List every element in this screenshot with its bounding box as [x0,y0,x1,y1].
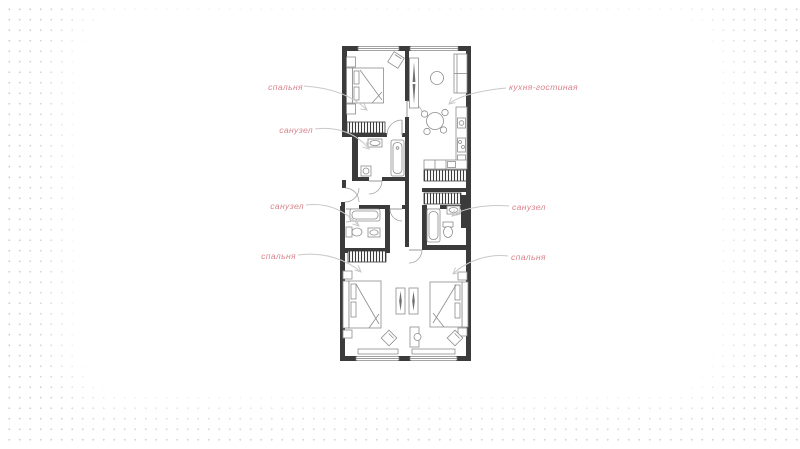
arrow-bedroom-bottom-right [453,255,508,274]
label-bathroom-mid-right: санузел [512,202,546,212]
desk-bottom-right-bedroom [410,327,421,347]
label-bathroom-mid-left: санузел [270,201,304,211]
label-bedroom-top: спальня [268,82,303,92]
lounge-chair-kitchen [431,72,444,85]
floor-plan-page: спальня санузел кухня-гостиная санузел с… [0,0,800,449]
floor-plan-drawing: спальня санузел кухня-гостиная санузел с… [0,0,800,449]
label-kitchen-living: кухня-гостиная [509,82,578,92]
kitchen-counter [456,107,467,163]
chair-bottom-left-bedroom [381,330,397,346]
kitchen-cabinets-bottom [424,160,467,181]
label-bedroom-bottom-right: спальня [511,252,546,262]
dining-table-kitchen [421,109,448,134]
label-bathroom-top: санузел [279,125,313,135]
sliding-wardrobe-kitchen [410,58,419,108]
bed-bottom-left-bedroom [343,271,381,338]
wardrobe-bottom-left-bedroom [348,251,386,262]
central-sliding-wardrobe [396,288,418,314]
bed-bottom-right-bedroom [430,272,468,336]
room-labels: спальня санузел кухня-гостиная санузел с… [261,82,578,262]
wardrobe-top-bedroom [347,122,385,133]
bathroom-mid-left-fixtures [346,209,380,237]
armchair-top-bedroom [388,52,405,69]
hall-wardrobe [424,193,461,204]
sofa-kitchen [454,54,467,93]
bathroom-mid-right-fixtures [427,206,460,242]
label-bedroom-bottom-left: спальня [261,251,296,261]
